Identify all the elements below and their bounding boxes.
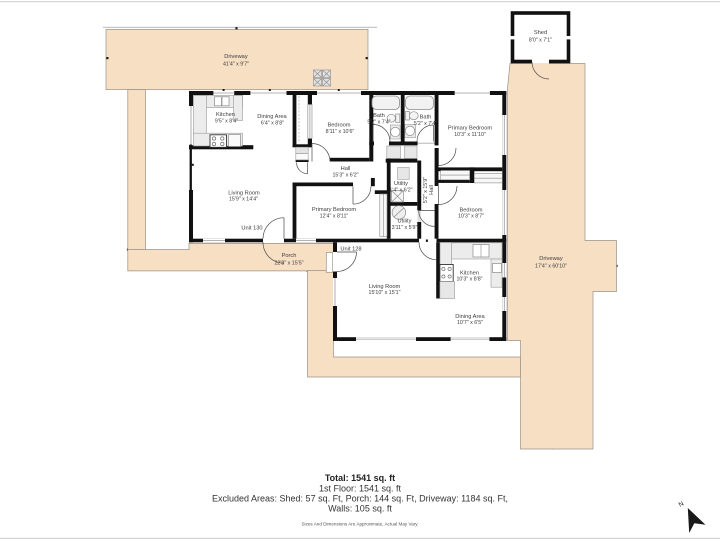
svg-text:Hall: Hall [429, 185, 435, 195]
svg-text:Walls: 105 sq. ft: Walls: 105 sq. ft [328, 504, 392, 514]
svg-text:Unit 130: Unit 130 [241, 225, 262, 231]
svg-text:17'4" x 60'10": 17'4" x 60'10" [535, 264, 567, 270]
svg-text:Utility: Utility [394, 181, 408, 187]
svg-text:Bedroom: Bedroom [327, 123, 350, 129]
svg-text:1'4" x 6'2": 1'4" x 6'2" [389, 188, 412, 194]
svg-text:Driveway: Driveway [224, 54, 248, 60]
svg-text:41'4" x 9'7": 41'4" x 9'7" [223, 62, 249, 68]
svg-text:Bedroom: Bedroom [459, 207, 482, 213]
svg-text:3'11" x 5'9": 3'11" x 5'9" [392, 225, 418, 231]
svg-text:10'7" x 6'5": 10'7" x 6'5" [457, 320, 483, 326]
svg-text:Bath: Bath [373, 113, 385, 119]
svg-text:22'8" x 15'5": 22'8" x 15'5" [274, 261, 303, 267]
svg-text:Kitchen: Kitchen [216, 112, 235, 118]
svg-text:9'5" x 8'4": 9'5" x 8'4" [215, 119, 238, 125]
svg-text:10'3" x 8'8": 10'3" x 8'8" [456, 276, 482, 282]
svg-text:Primary Bedroom: Primary Bedroom [448, 126, 493, 132]
svg-text:6'4" x 8'8": 6'4" x 8'8" [261, 121, 284, 127]
svg-text:Sizes And Dimensions Are Appro: Sizes And Dimensions Are Approximate, Ac… [301, 522, 418, 527]
svg-text:15'3" x 6'2": 15'3" x 6'2" [332, 173, 358, 179]
svg-text:8'11" x 10'6": 8'11" x 10'6" [326, 129, 355, 135]
svg-text:Bath: Bath [420, 115, 432, 121]
svg-text:12'4" x 8'11": 12'4" x 8'11" [320, 213, 349, 219]
svg-text:5'2" x 7'4": 5'2" x 7'4" [367, 120, 390, 126]
svg-text:10'3" x 8'7": 10'3" x 8'7" [458, 214, 484, 220]
svg-text:1st Floor: 1541 sq. ft: 1st Floor: 1541 sq. ft [319, 484, 402, 494]
svg-text:Unit 128: Unit 128 [340, 247, 361, 253]
svg-text:Driveway: Driveway [539, 256, 563, 262]
svg-text:10'3" x 11'10": 10'3" x 11'10" [454, 132, 486, 138]
svg-text:Dining Area: Dining Area [257, 114, 287, 120]
svg-text:15'9" x 14'4": 15'9" x 14'4" [229, 196, 258, 202]
svg-text:Hall: Hall [341, 166, 351, 172]
svg-text:Porch: Porch [282, 253, 297, 259]
svg-text:Total: 1541 sq. ft: Total: 1541 sq. ft [325, 473, 395, 483]
svg-text:8'0" x 7'1": 8'0" x 7'1" [529, 38, 552, 44]
svg-text:Shed: Shed [534, 30, 547, 36]
svg-text:15'10" x 15'1": 15'10" x 15'1" [369, 290, 401, 296]
svg-text:Excluded Areas: Shed: 57 sq. F: Excluded Areas: Shed: 57 sq. Ft, Porch: … [212, 494, 508, 504]
svg-text:Primary Bedroom: Primary Bedroom [312, 207, 357, 213]
svg-text:5'2" x 7'4": 5'2" x 7'4" [414, 121, 437, 127]
svg-text:Utility: Utility [398, 219, 412, 225]
